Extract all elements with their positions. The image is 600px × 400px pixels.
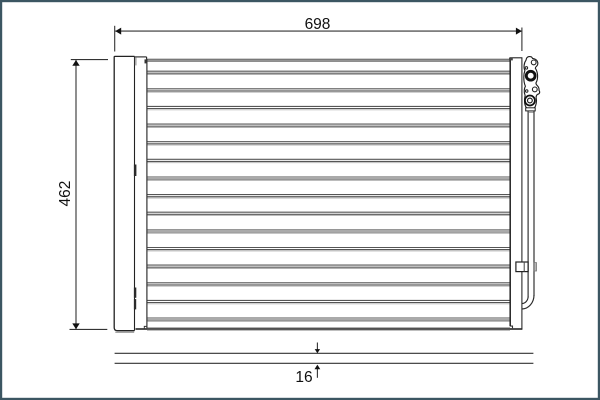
svg-text:462: 462 bbox=[57, 181, 74, 207]
svg-text:698: 698 bbox=[305, 16, 331, 33]
svg-text:16: 16 bbox=[295, 369, 312, 386]
